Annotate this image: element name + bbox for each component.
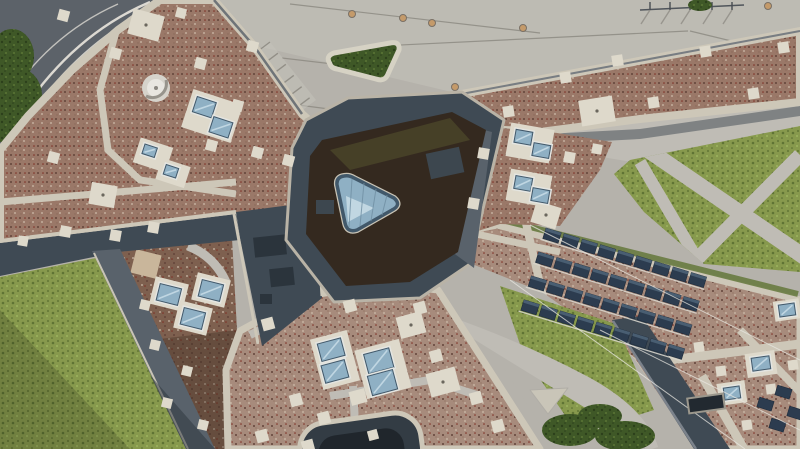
pad-anchor [595, 109, 598, 112]
paver-pad [787, 359, 798, 370]
paver-pad [467, 197, 480, 210]
paver-pad [741, 419, 752, 430]
paver-pad [17, 235, 29, 247]
pad-anchor [544, 213, 547, 216]
paver-pad [109, 229, 122, 242]
paver-pad [699, 45, 712, 58]
skylight-se [744, 350, 777, 378]
dome-cap [154, 86, 158, 90]
manhole-cover [765, 3, 772, 10]
roof-hatch [260, 294, 272, 304]
paver-pad [765, 383, 776, 394]
paver-pad [563, 151, 576, 164]
skylight-se3 [773, 298, 800, 321]
paver-pad [777, 41, 790, 54]
aerial-photo [0, 0, 800, 449]
paver-pad [715, 365, 726, 376]
paver-pad [477, 147, 490, 160]
manhole-cover [429, 20, 436, 27]
paver-pad [693, 341, 704, 352]
pad-anchor [101, 193, 104, 196]
roof-dome-vent [142, 74, 170, 102]
pad-anchor [441, 380, 444, 383]
paver-pad [59, 225, 72, 238]
paver-pad [591, 143, 603, 155]
aerial-photo-canvas [0, 0, 800, 449]
manhole-cover [349, 11, 356, 18]
courtyard-pad [316, 200, 334, 214]
shrub [578, 404, 622, 428]
paver-pad [611, 54, 624, 67]
paver-pad [747, 87, 760, 100]
pad-anchor [409, 323, 412, 326]
paver-pad [559, 71, 572, 84]
pad-anchor [144, 23, 147, 26]
manhole-cover [452, 84, 459, 91]
paver-pad [147, 221, 160, 234]
roof-hatch [253, 234, 287, 257]
manhole-cover [520, 25, 527, 32]
paver-pad [502, 105, 515, 118]
manhole-cover [400, 15, 407, 22]
paver-pad [647, 96, 660, 109]
roof-hatch [269, 267, 295, 287]
